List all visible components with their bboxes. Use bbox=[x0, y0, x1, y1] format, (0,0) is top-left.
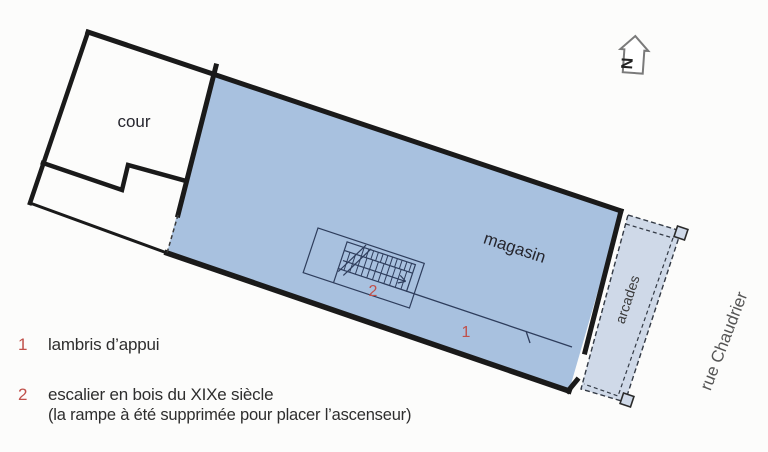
arcade-pillar-top bbox=[674, 226, 688, 240]
legend-note-2: (la rampe à été supprimée pour placer l’… bbox=[48, 405, 411, 426]
legend-text-2: escalier en bois du XIXe siècle bbox=[48, 384, 411, 405]
legend-item-2: 2 escalier en bois du XIXe siècle (la ra… bbox=[18, 384, 411, 426]
marker-2-escalier: 2 bbox=[369, 283, 378, 300]
legend-num-1: 1 bbox=[18, 334, 48, 355]
cour-label: cour bbox=[117, 112, 150, 131]
arcade-pillar-bottom bbox=[620, 393, 634, 407]
legend-item-1: 1 lambris d’appui bbox=[18, 334, 159, 355]
legend-text-2-block: escalier en bois du XIXe siècle (la ramp… bbox=[48, 384, 411, 426]
floor-plan-page: N cour magasin arcades rue Chaudrier 2 1… bbox=[0, 0, 768, 452]
legend-num-2: 2 bbox=[18, 384, 48, 405]
magasin-area bbox=[167, 75, 621, 391]
legend-text-1: lambris d’appui bbox=[48, 334, 159, 355]
north-letter: N bbox=[619, 57, 637, 70]
street-label: rue Chaudrier bbox=[696, 289, 751, 393]
north-arrow: N bbox=[619, 35, 650, 74]
marker-1-lambris: 1 bbox=[462, 324, 471, 341]
